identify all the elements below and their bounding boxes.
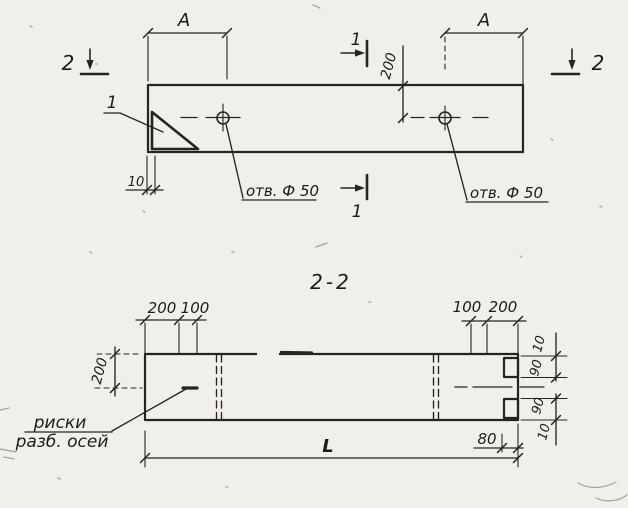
drawing-canvas: A A 200 1 1	[0, 0, 628, 508]
scan-gap	[257, 349, 279, 358]
dim-label-10-plan: 10	[128, 175, 145, 190]
dims-right-edge: 10 90 90 10	[521, 333, 567, 445]
dim-label-l: L	[322, 436, 333, 457]
joint-lines-right	[434, 355, 439, 419]
hole-right	[411, 106, 488, 130]
section-marker-2-right: 2	[552, 49, 604, 75]
dim-label-200-plan: 200	[378, 51, 400, 81]
dim-label-90-r1: 90	[527, 358, 546, 378]
dim-label-200-tr: 200	[489, 298, 518, 316]
marker-2-right-label: 2	[592, 51, 605, 75]
section-marker-2-left: 2	[62, 49, 108, 75]
scan-noise	[0, 5, 627, 501]
beam-outline	[148, 85, 523, 152]
joint-lines-left	[217, 355, 222, 419]
hole-left	[181, 104, 240, 131]
axis-centerline	[183, 387, 544, 388]
plan-view: A A 200 1 1	[62, 10, 605, 222]
marker-2-left-label: 2	[62, 51, 75, 75]
dims-top-right: 100 200	[453, 298, 526, 353]
dim-a-left: A	[144, 10, 232, 81]
hole-callout-left: отв. Ф 50	[226, 124, 319, 200]
dim-label-90-r2: 90	[529, 396, 548, 416]
dim-a-right: A	[441, 10, 528, 85]
section-marker-1-bottom: 1	[341, 175, 367, 222]
axis-note-line1: риски	[33, 413, 87, 433]
dim-label-a-right: A	[477, 10, 490, 31]
dim-label-80: 80	[477, 430, 496, 448]
scan-gap-dash	[281, 352, 312, 353]
marker-1-bottom-label: 1	[352, 202, 363, 222]
marker-1-top-label: 1	[351, 30, 362, 50]
axis-note-line2: разб. осей	[15, 432, 109, 452]
section-marker-1-top: 1	[341, 30, 367, 66]
dim-200-side: 200	[89, 347, 142, 396]
dims-top-left: 200 100	[136, 299, 209, 353]
dim-label-a-left: A	[177, 10, 190, 31]
hole-right-label: отв. Ф 50	[470, 184, 543, 202]
dim-label-100-tr: 100	[453, 298, 482, 316]
section-view: 2-2 200	[15, 243, 567, 467]
dim-label-100-tl: 100	[181, 299, 210, 317]
notch-top	[504, 358, 518, 377]
dim-label-200-side: 200	[89, 356, 111, 386]
drawing-sheet: A A 200 1 1	[0, 0, 628, 508]
dim-10-plan: 10	[126, 156, 163, 195]
dim-l: L	[141, 424, 523, 467]
dim-label-200-tl: 200	[148, 299, 177, 317]
notch-bottom	[504, 399, 518, 418]
hole-left-label: отв. Ф 50	[246, 182, 319, 200]
hole-callout-right: отв. Ф 50	[447, 124, 548, 202]
dim-80: 80	[474, 430, 523, 453]
section-title: 2-2	[310, 270, 352, 294]
stray-mark	[316, 243, 327, 247]
detail-1-label: 1	[107, 93, 118, 113]
dim-label-10-r1: 10	[530, 334, 549, 354]
